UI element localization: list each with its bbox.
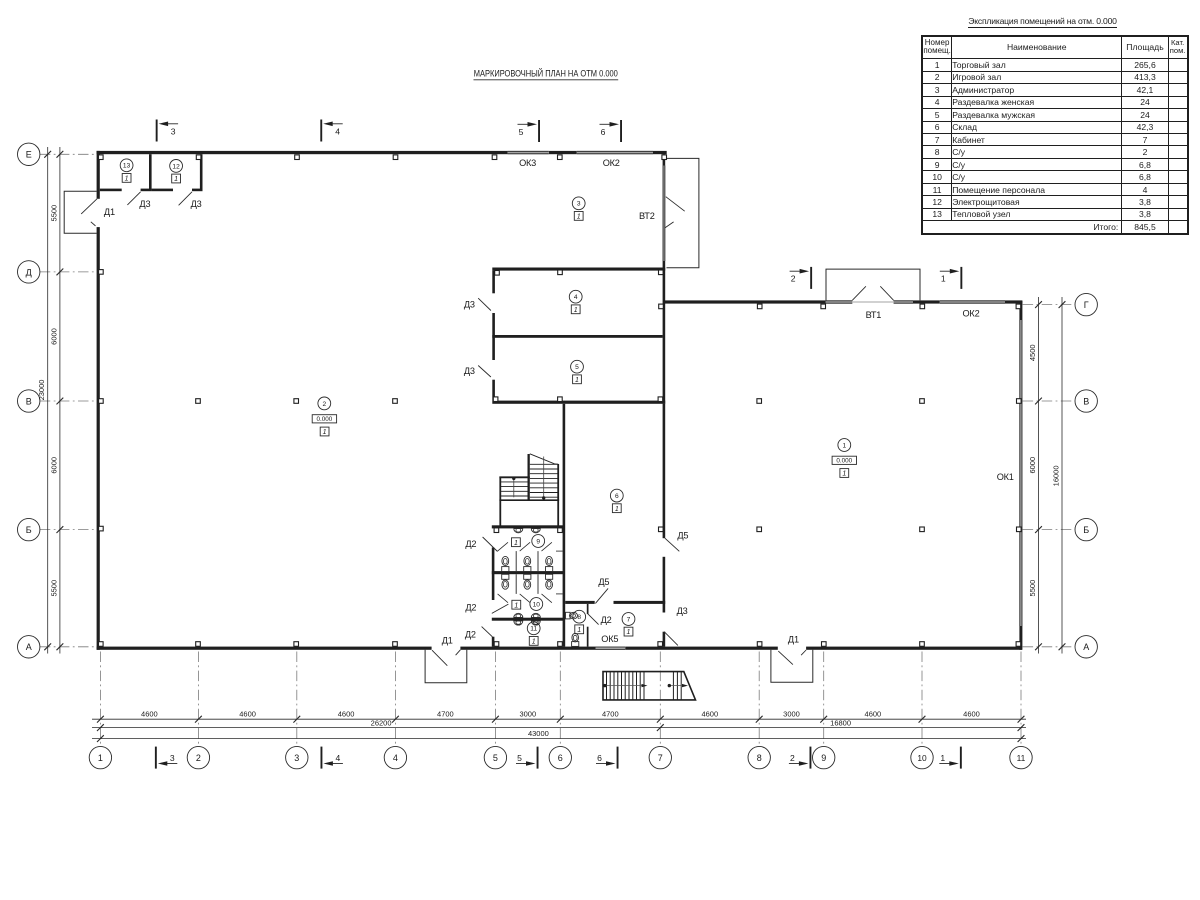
svg-text:6: 6 <box>601 127 606 137</box>
svg-text:8: 8 <box>757 753 762 763</box>
svg-text:4: 4 <box>336 753 341 763</box>
svg-text:3000: 3000 <box>783 709 800 718</box>
svg-text:ОК3: ОК3 <box>519 158 536 168</box>
svg-text:ВТ2: ВТ2 <box>639 211 655 221</box>
svg-text:Д2: Д2 <box>465 629 476 639</box>
svg-text:Б: Б <box>1083 525 1089 535</box>
svg-text:13: 13 <box>123 163 131 170</box>
svg-text:9: 9 <box>821 753 826 763</box>
svg-text:1: 1 <box>532 639 536 646</box>
svg-text:11: 11 <box>1017 753 1026 763</box>
svg-text:6000: 6000 <box>1028 457 1037 474</box>
svg-text:1: 1 <box>577 627 581 634</box>
svg-text:1: 1 <box>615 506 619 513</box>
svg-text:5500: 5500 <box>49 580 58 597</box>
svg-text:2: 2 <box>791 274 796 284</box>
svg-text:Д2: Д2 <box>465 603 476 613</box>
svg-text:2: 2 <box>196 753 201 763</box>
svg-text:МАРКИРОВОЧНЫЙ ПЛАН НА ОТМ 0.00: МАРКИРОВОЧНЫЙ ПЛАН НА ОТМ 0.000 <box>474 68 618 79</box>
svg-text:Д3: Д3 <box>191 199 202 209</box>
svg-text:4600: 4600 <box>141 709 158 718</box>
svg-text:4700: 4700 <box>437 709 454 718</box>
svg-text:4600: 4600 <box>865 709 882 718</box>
svg-text:6: 6 <box>597 753 602 763</box>
svg-text:ОК1: ОК1 <box>997 472 1014 482</box>
svg-text:9: 9 <box>536 538 540 545</box>
svg-text:1: 1 <box>941 274 946 284</box>
svg-text:4600: 4600 <box>701 709 718 718</box>
svg-text:26200: 26200 <box>371 718 392 727</box>
svg-text:4600: 4600 <box>239 709 256 718</box>
svg-text:Д: Д <box>26 267 32 277</box>
svg-text:Б: Б <box>26 525 32 535</box>
svg-text:3: 3 <box>577 201 581 208</box>
svg-text:Д1: Д1 <box>788 635 799 645</box>
svg-text:5: 5 <box>493 753 498 763</box>
svg-text:Д3: Д3 <box>677 606 688 616</box>
svg-text:3: 3 <box>171 126 176 136</box>
svg-text:3: 3 <box>170 753 175 763</box>
svg-text:5: 5 <box>575 364 579 371</box>
svg-text:1: 1 <box>842 471 846 478</box>
svg-text:6: 6 <box>615 493 619 500</box>
svg-text:4500: 4500 <box>1028 344 1037 361</box>
svg-text:Д3: Д3 <box>139 199 150 209</box>
svg-text:1: 1 <box>514 540 518 547</box>
svg-text:1: 1 <box>574 307 578 314</box>
svg-text:6000: 6000 <box>49 328 58 345</box>
svg-text:1: 1 <box>174 176 178 183</box>
svg-text:Д2: Д2 <box>465 539 476 549</box>
svg-text:А: А <box>1083 642 1089 652</box>
svg-text:Д1: Д1 <box>442 636 453 646</box>
svg-text:Е: Е <box>26 150 32 160</box>
svg-text:12: 12 <box>172 163 180 170</box>
svg-text:5500: 5500 <box>1028 580 1037 597</box>
svg-text:Д3: Д3 <box>464 366 475 376</box>
svg-text:1: 1 <box>575 377 579 384</box>
svg-text:1: 1 <box>940 753 945 763</box>
svg-text:4600: 4600 <box>338 709 355 718</box>
svg-text:Д1: Д1 <box>104 207 115 217</box>
svg-text:1: 1 <box>323 429 327 436</box>
svg-text:7: 7 <box>658 753 663 763</box>
svg-text:4: 4 <box>574 294 578 301</box>
svg-text:1: 1 <box>125 176 129 183</box>
svg-text:А: А <box>26 642 32 652</box>
svg-text:5: 5 <box>517 753 522 763</box>
svg-text:16800: 16800 <box>830 718 851 727</box>
svg-text:7: 7 <box>627 616 631 623</box>
svg-text:ОК5: ОК5 <box>601 634 618 644</box>
svg-text:10: 10 <box>917 753 927 763</box>
svg-text:3: 3 <box>294 753 299 763</box>
svg-text:6000: 6000 <box>49 457 58 474</box>
svg-text:1: 1 <box>577 214 581 221</box>
svg-text:В: В <box>26 396 32 406</box>
svg-text:1: 1 <box>842 442 846 449</box>
svg-text:1: 1 <box>514 602 518 609</box>
svg-text:5: 5 <box>519 127 524 137</box>
svg-text:ВТ1: ВТ1 <box>866 310 882 320</box>
svg-text:5500: 5500 <box>49 205 58 222</box>
svg-text:3000: 3000 <box>519 709 536 718</box>
svg-text:43000: 43000 <box>528 729 549 738</box>
svg-text:4: 4 <box>335 126 340 136</box>
svg-text:Д2: Д2 <box>601 615 612 625</box>
svg-text:0.000: 0.000 <box>317 416 333 423</box>
svg-text:1: 1 <box>627 629 631 636</box>
svg-text:Д5: Д5 <box>598 577 609 587</box>
svg-text:8: 8 <box>577 614 581 621</box>
svg-text:11: 11 <box>530 626 537 633</box>
svg-text:16000: 16000 <box>1052 465 1061 486</box>
svg-text:Г: Г <box>1084 300 1089 310</box>
svg-text:4700: 4700 <box>602 709 619 718</box>
svg-text:4600: 4600 <box>963 709 980 718</box>
svg-text:10: 10 <box>533 601 541 608</box>
svg-text:ОК2: ОК2 <box>603 158 620 168</box>
svg-text:6: 6 <box>558 753 563 763</box>
svg-text:1: 1 <box>98 753 103 763</box>
svg-text:4: 4 <box>393 753 398 763</box>
svg-text:ОК2: ОК2 <box>962 309 979 319</box>
svg-text:2: 2 <box>790 753 795 763</box>
svg-text:2: 2 <box>322 401 326 408</box>
svg-text:23000: 23000 <box>37 380 46 401</box>
svg-text:Д5: Д5 <box>677 531 688 541</box>
svg-text:В: В <box>1083 396 1089 406</box>
svg-text:0.000: 0.000 <box>836 458 852 465</box>
svg-text:Д3: Д3 <box>464 299 475 309</box>
